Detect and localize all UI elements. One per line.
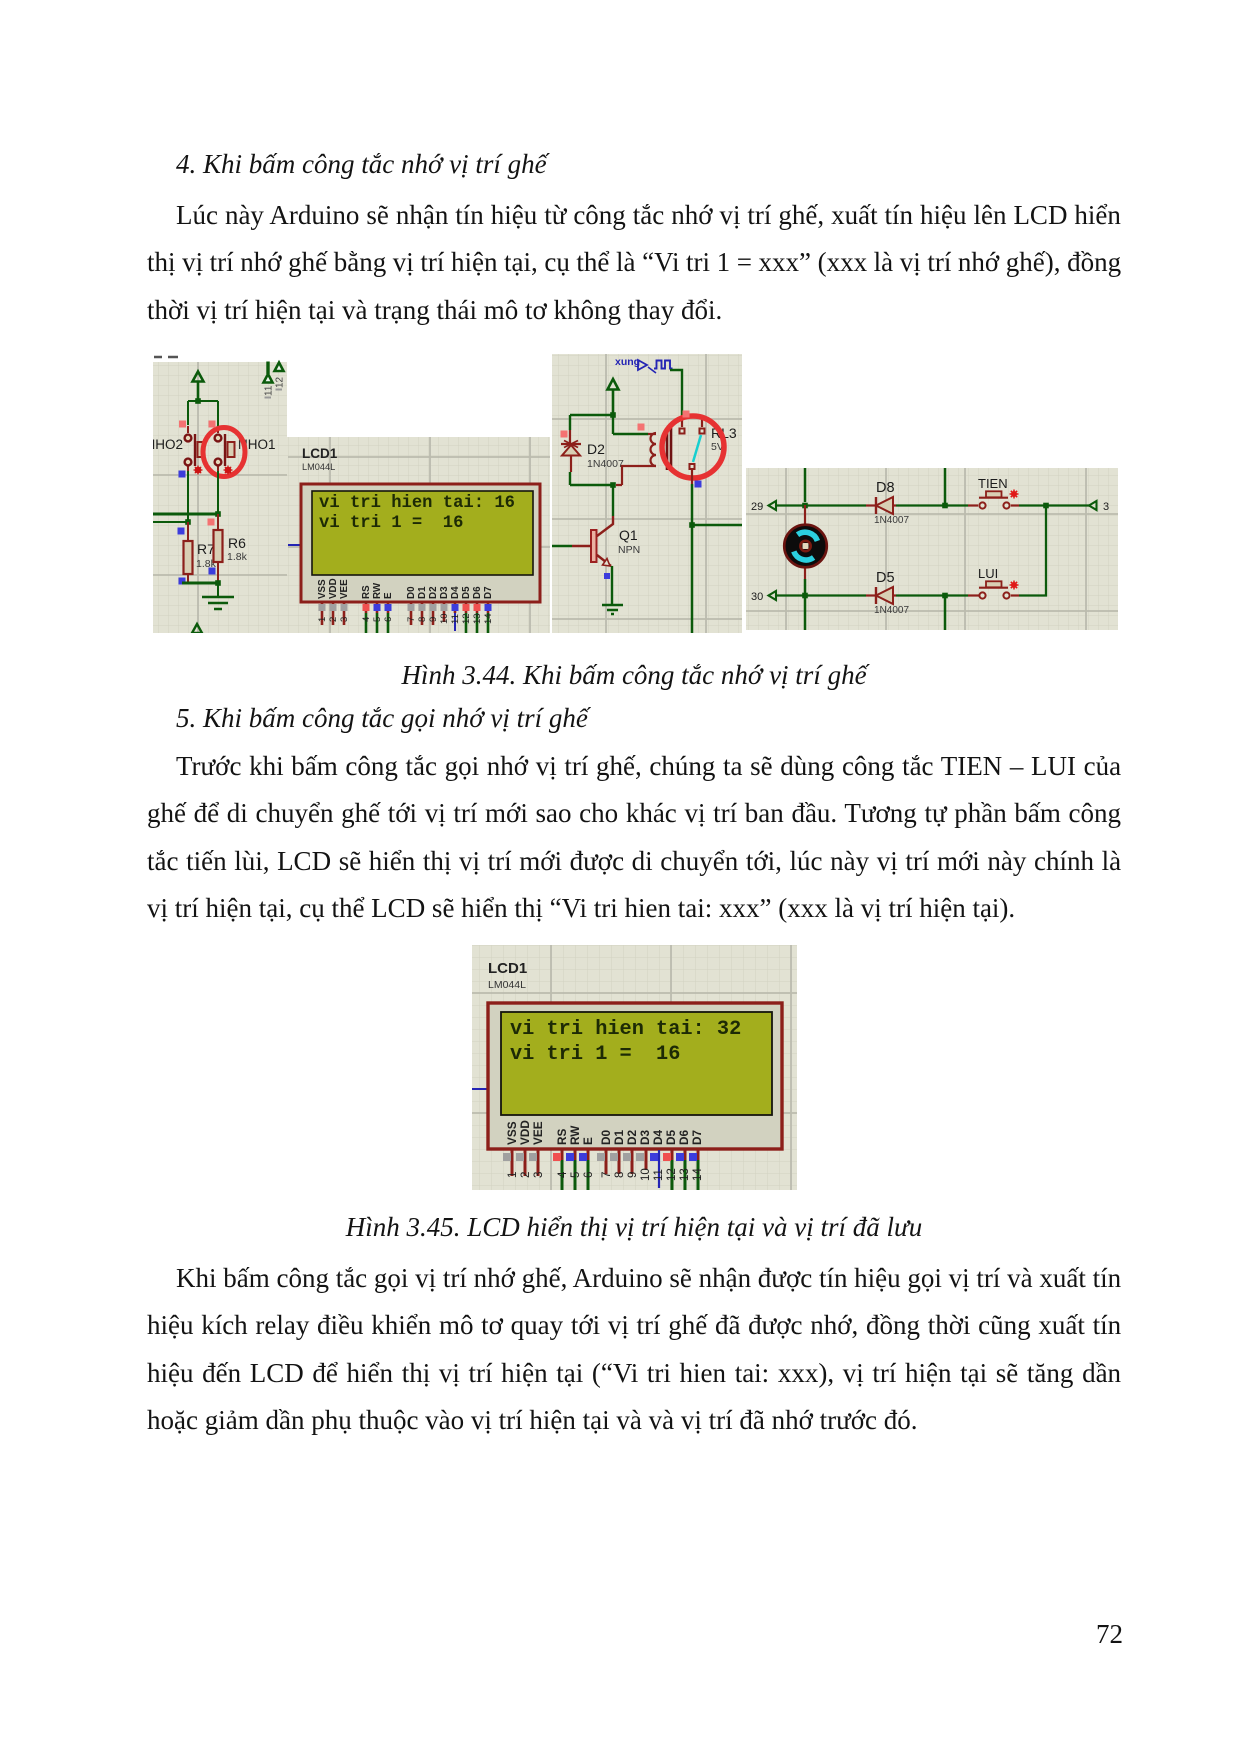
svg-text:8: 8 bbox=[614, 1172, 626, 1178]
svg-text:1.8k: 1.8k bbox=[227, 551, 248, 563]
svg-text:NHO2: NHO2 bbox=[145, 437, 183, 452]
svg-text:VDD: VDD bbox=[518, 1120, 532, 1145]
svg-text:D3: D3 bbox=[439, 586, 450, 599]
svg-text:10: 10 bbox=[640, 1168, 652, 1181]
svg-text:D7: D7 bbox=[483, 586, 494, 599]
svg-text:1N4007: 1N4007 bbox=[874, 515, 909, 526]
svg-text:D6: D6 bbox=[472, 586, 483, 599]
svg-text:2: 2 bbox=[520, 1172, 532, 1178]
svg-text:D6: D6 bbox=[677, 1129, 691, 1145]
svg-text:E: E bbox=[581, 1137, 595, 1145]
svg-text:R7: R7 bbox=[197, 541, 215, 557]
svg-text:7: 7 bbox=[601, 1172, 613, 1178]
svg-text:D4: D4 bbox=[651, 1129, 665, 1145]
svg-text:vi tri 1 = 16: vi tri 1 = 16 bbox=[510, 1043, 680, 1066]
svg-text:D3: D3 bbox=[638, 1129, 652, 1145]
svg-text:9: 9 bbox=[428, 617, 439, 622]
svg-text:Q1: Q1 bbox=[619, 527, 638, 543]
svg-text:D2: D2 bbox=[428, 586, 439, 599]
svg-text:12: 12 bbox=[666, 1168, 678, 1181]
svg-text:11: 11 bbox=[264, 385, 275, 396]
svg-text:D1: D1 bbox=[417, 586, 428, 599]
svg-text:D5: D5 bbox=[461, 586, 472, 599]
svg-text:14: 14 bbox=[483, 613, 494, 624]
svg-text:4: 4 bbox=[557, 1171, 569, 1178]
svg-text:D5: D5 bbox=[876, 570, 895, 586]
svg-text:LCD1: LCD1 bbox=[488, 960, 527, 977]
svg-text:LM044L: LM044L bbox=[488, 979, 526, 991]
svg-text:D2: D2 bbox=[587, 441, 605, 457]
svg-text:11: 11 bbox=[450, 614, 461, 624]
svg-text:VEE: VEE bbox=[531, 1121, 545, 1145]
svg-text:12: 12 bbox=[275, 376, 286, 388]
svg-text:LUI: LUI bbox=[978, 566, 998, 581]
svg-text:VDD: VDD bbox=[328, 578, 339, 599]
svg-text:4: 4 bbox=[361, 617, 372, 622]
svg-text:E: E bbox=[383, 592, 394, 599]
svg-text:VSS: VSS bbox=[317, 579, 328, 599]
svg-text:D1: D1 bbox=[612, 1129, 626, 1145]
svg-text:29: 29 bbox=[751, 501, 763, 513]
svg-text:1N4007: 1N4007 bbox=[874, 605, 909, 616]
svg-text:D5: D5 bbox=[664, 1129, 678, 1145]
svg-text:RW: RW bbox=[568, 1125, 582, 1145]
svg-text:6: 6 bbox=[583, 1172, 595, 1178]
svg-text:3: 3 bbox=[339, 617, 350, 622]
svg-text:3: 3 bbox=[533, 1172, 545, 1178]
svg-text:RS: RS bbox=[361, 585, 372, 599]
svg-text:RS: RS bbox=[555, 1128, 569, 1145]
svg-text:12: 12 bbox=[461, 613, 472, 624]
svg-text:D7: D7 bbox=[690, 1129, 704, 1145]
svg-text:10: 10 bbox=[439, 613, 450, 624]
svg-text:1: 1 bbox=[317, 617, 328, 622]
svg-text:9: 9 bbox=[627, 1172, 639, 1178]
svg-text:vi tri 1 = 16: vi tri 1 = 16 bbox=[319, 514, 463, 533]
svg-text:30: 30 bbox=[751, 591, 763, 603]
svg-text:5: 5 bbox=[570, 1172, 582, 1178]
svg-text:TIEN: TIEN bbox=[978, 476, 1008, 491]
svg-text:3: 3 bbox=[1103, 501, 1109, 513]
svg-text:13: 13 bbox=[472, 613, 483, 624]
svg-text:NPN: NPN bbox=[618, 544, 640, 556]
svg-text:R6: R6 bbox=[228, 535, 246, 551]
svg-text:D8: D8 bbox=[876, 480, 895, 496]
svg-text:14: 14 bbox=[692, 1168, 704, 1181]
svg-text:8: 8 bbox=[417, 617, 428, 622]
svg-text:RW: RW bbox=[372, 582, 383, 599]
svg-text:D4: D4 bbox=[450, 586, 461, 599]
svg-text:vi tri hien tai: 16: vi tri hien tai: 16 bbox=[319, 494, 515, 513]
svg-text:D0: D0 bbox=[406, 586, 417, 599]
svg-text:13: 13 bbox=[679, 1168, 691, 1181]
svg-text:LCD1: LCD1 bbox=[302, 446, 338, 461]
svg-text:5: 5 bbox=[372, 617, 383, 622]
svg-text:D0: D0 bbox=[599, 1129, 613, 1145]
svg-text:2: 2 bbox=[328, 617, 339, 622]
svg-text:VEE: VEE bbox=[339, 579, 350, 599]
svg-text:vi tri hien tai: 32: vi tri hien tai: 32 bbox=[510, 1018, 741, 1041]
svg-text:1: 1 bbox=[507, 1172, 519, 1178]
svg-text:7: 7 bbox=[406, 617, 417, 622]
svg-text:1N4007: 1N4007 bbox=[587, 458, 624, 470]
svg-text:11: 11 bbox=[653, 1169, 665, 1181]
svg-text:LM044L: LM044L bbox=[302, 462, 335, 472]
svg-text:VSS: VSS bbox=[505, 1121, 519, 1145]
svg-text:6: 6 bbox=[383, 617, 394, 622]
svg-text:D2: D2 bbox=[625, 1129, 639, 1145]
svg-text:xung: xung bbox=[615, 356, 640, 368]
